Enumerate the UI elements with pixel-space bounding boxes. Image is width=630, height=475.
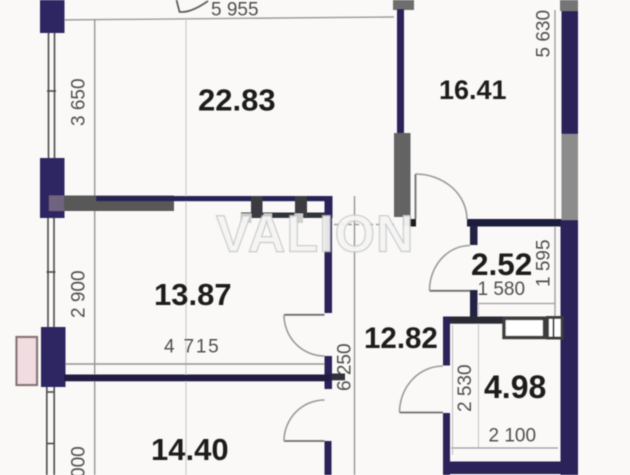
svg-text:1 580: 1 580 [478, 279, 526, 300]
svg-text:4.98: 4.98 [484, 369, 546, 405]
svg-text:5 630: 5 630 [534, 10, 555, 58]
svg-text:000: 000 [69, 446, 90, 475]
svg-text:6 250: 6 250 [335, 343, 356, 391]
svg-text:2 900: 2 900 [69, 270, 90, 318]
svg-text:1 595: 1 595 [534, 239, 555, 287]
svg-text:5 955: 5 955 [211, 0, 259, 21]
svg-text:13.87: 13.87 [154, 277, 232, 312]
svg-text:VALION: VALION [216, 206, 415, 264]
svg-text:22.83: 22.83 [198, 83, 276, 118]
svg-text:2 530: 2 530 [455, 364, 476, 412]
svg-text:2 100: 2 100 [489, 426, 537, 447]
svg-text:14.40: 14.40 [151, 432, 229, 467]
svg-text:4 715: 4 715 [164, 337, 221, 358]
svg-text:12.82: 12.82 [364, 322, 438, 355]
svg-text:3 650: 3 650 [69, 78, 90, 126]
svg-text:2.52: 2.52 [471, 246, 532, 282]
svg-text:16.41: 16.41 [439, 75, 507, 105]
